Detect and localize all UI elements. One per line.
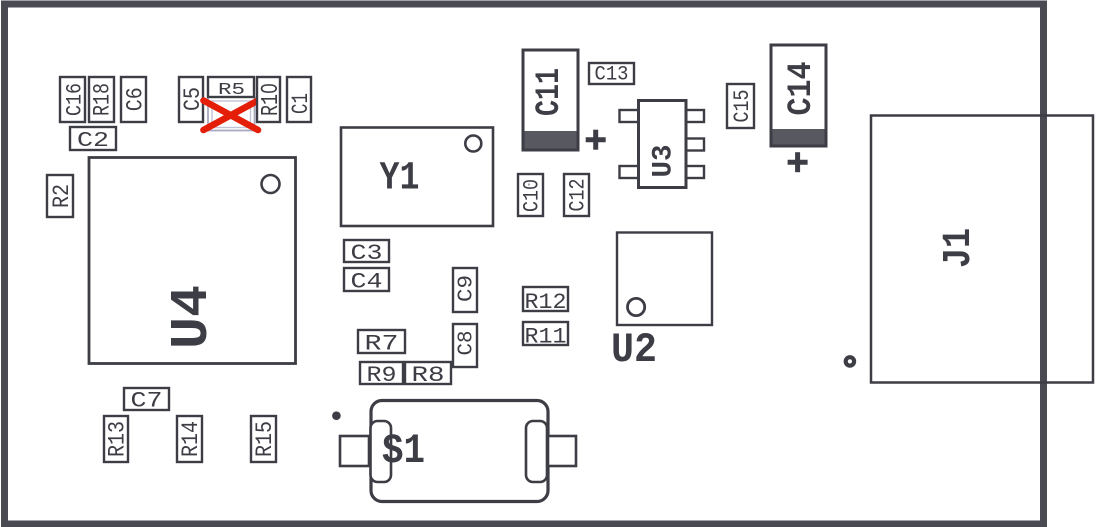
svg-text:R11: R11 <box>525 324 567 350</box>
svg-text:C3: C3 <box>351 241 383 266</box>
svg-text:C1: C1 <box>288 93 315 114</box>
svg-text:Y1: Y1 <box>380 156 420 201</box>
svg-text:C11: C11 <box>531 68 569 116</box>
svg-text:R13: R13 <box>105 421 131 457</box>
svg-text:C6: C6 <box>123 87 150 111</box>
svg-text:C13: C13 <box>595 64 629 87</box>
svg-text:U2: U2 <box>611 326 657 374</box>
svg-text:R5: R5 <box>218 80 245 99</box>
svg-text:U4: U4 <box>162 285 222 349</box>
svg-text:R18: R18 <box>90 83 116 116</box>
svg-text:J1: J1 <box>937 228 982 268</box>
svg-text:C14: C14 <box>783 62 821 116</box>
svg-text:C15: C15 <box>730 90 755 123</box>
svg-text:R12: R12 <box>525 289 567 315</box>
svg-text:R14: R14 <box>178 421 204 457</box>
svg-text:C4: C4 <box>351 270 383 295</box>
svg-text:R2: R2 <box>49 184 76 208</box>
svg-text:R15: R15 <box>252 421 278 457</box>
svg-text:C16: C16 <box>63 83 88 116</box>
svg-text:R8: R8 <box>412 363 445 388</box>
svg-text:C9: C9 <box>455 275 479 302</box>
svg-text:R9: R9 <box>367 363 397 388</box>
svg-text:S1: S1 <box>382 427 425 475</box>
svg-text:U3: U3 <box>649 145 680 178</box>
svg-text:R7: R7 <box>365 332 399 357</box>
svg-text:R10: R10 <box>258 83 285 116</box>
svg-text:C12: C12 <box>566 179 591 212</box>
svg-text:C2: C2 <box>77 130 109 153</box>
svg-text:C7: C7 <box>131 389 163 414</box>
svg-text:C8: C8 <box>455 331 479 356</box>
